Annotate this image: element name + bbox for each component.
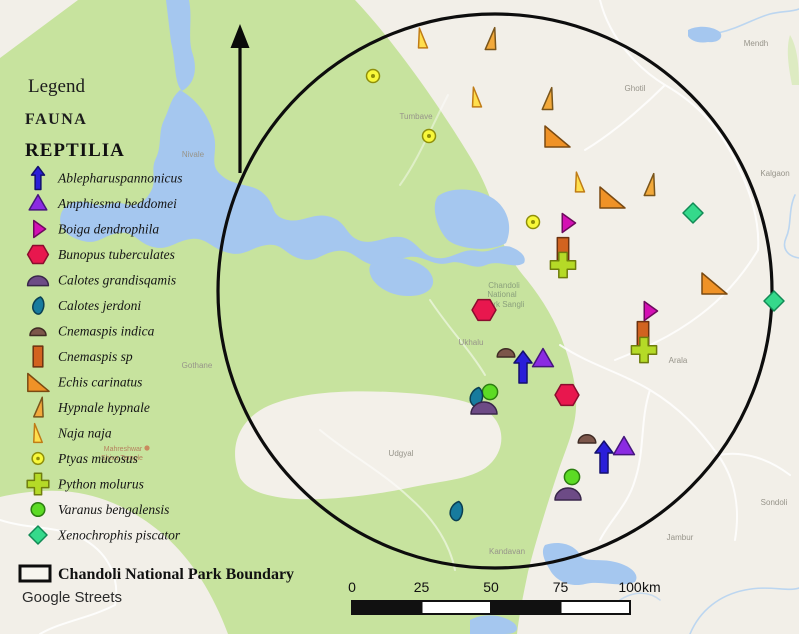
map-label-mendh: Mendh [744, 39, 768, 48]
cnemaspis-sp-legend-icon [33, 346, 43, 367]
map-label-ukhalu: Ukhalu [459, 338, 484, 347]
temple-poi-icon [144, 445, 149, 450]
species-label-hypnale: Hypnale hypnale [57, 400, 150, 415]
map-marker-bunopus [472, 300, 496, 321]
species-label-bunopus: Bunopus tuberculates [58, 247, 175, 262]
map-label-sondoli: Sondoli [761, 498, 788, 507]
boundary-swatch [20, 566, 50, 581]
species-label-calotes-g: Calotes grandisqamis [58, 273, 176, 288]
map-canvas[interactable]: NivaleTumbaveGhotilMendhKalgaonGothaneUk… [0, 0, 799, 634]
species-label-xenochrophis: Xenochrophis piscator [57, 528, 181, 543]
map-marker-ptyas [527, 216, 540, 229]
map-label-gothane: Gothane [182, 361, 213, 370]
bunopus-legend-icon [28, 245, 49, 263]
species-label-cnemaspis-i: Cnemaspis indica [58, 324, 155, 339]
scalebar-segments [352, 601, 630, 614]
boundary-label: Chandoli National Park Boundary [58, 566, 294, 583]
scalebar-unit: km [642, 579, 661, 595]
ptyas-legend-icon [32, 453, 44, 465]
map-label-arala: Arala [669, 356, 688, 365]
map-label-kandavan: Kandavan [489, 547, 525, 556]
species-label-echis: Echis carinatus [57, 375, 142, 390]
scalebar-tick-25: 25 [414, 579, 430, 595]
species-label-boiga: Boiga dendrophila [58, 222, 159, 237]
legend-fauna-heading: FAUNA [25, 111, 87, 128]
species-label-amphiesma: Amphiesma beddomei [57, 196, 177, 211]
species-label-cnemaspis-sp: Cnemaspis sp [58, 349, 133, 364]
species-label-ablepharus: Ablepharuspannonicus [57, 171, 183, 186]
species-label-ptyas: Ptyas mucosus [57, 451, 138, 466]
map-label-jambur: Jambur [667, 533, 694, 542]
species-label-calotes-j: Calotes jerdoni [58, 298, 141, 313]
map-label-chandoli: Chandoli [488, 281, 520, 290]
scalebar-tick-0: 0 [348, 579, 356, 595]
varanus-legend-icon [31, 503, 45, 517]
map-label-udgyal: Udgyal [389, 449, 414, 458]
map-marker-varanus [564, 469, 579, 484]
map-figure: NivaleTumbaveGhotilMendhKalgaonGothaneUk… [0, 0, 799, 634]
map-label-kalgaon: Kalgaon [760, 169, 789, 178]
map-label-nivale: Nivale [182, 150, 205, 159]
map-label-tumbave: Tumbave [399, 112, 433, 121]
legend-group-heading: REPTILIA [25, 140, 125, 161]
species-label-python: Python molurus [57, 477, 144, 492]
map-label-national: National [487, 290, 517, 299]
map-marker-varanus [482, 384, 497, 399]
map-label-ghotil: Ghotil [625, 84, 646, 93]
scalebar-tick-75: 75 [553, 579, 569, 595]
scalebar-tick-50: 50 [483, 579, 499, 595]
scalebar-tick-100: 100 [618, 579, 642, 595]
map-marker-ptyas [423, 130, 436, 143]
species-label-naja: Naja naja [57, 426, 112, 441]
basemap-label: Google Streets [22, 589, 122, 606]
map-marker-ptyas [367, 70, 380, 83]
species-label-varanus: Varanus bengalensis [58, 502, 169, 517]
map-marker-bunopus [555, 385, 579, 406]
legend-title: Legend [28, 76, 85, 97]
